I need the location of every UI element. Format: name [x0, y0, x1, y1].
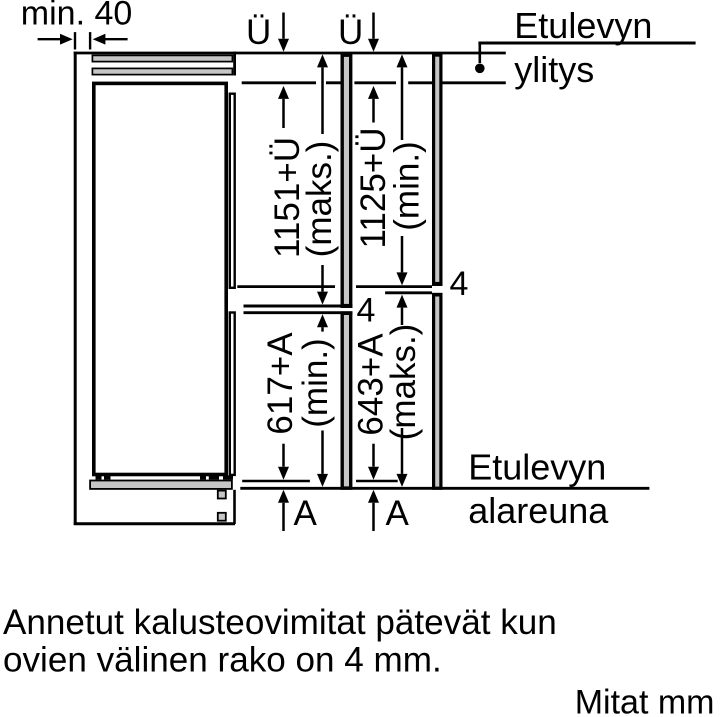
svg-text:Ü: Ü: [338, 13, 363, 52]
svg-text:4: 4: [357, 292, 376, 330]
svg-text:(maks.): (maks.): [300, 141, 339, 258]
svg-text:ylitys: ylitys: [514, 49, 594, 90]
svg-text:(min.): (min.): [296, 338, 335, 427]
svg-text:(min.): (min.): [388, 141, 427, 230]
svg-text:min. 40: min. 40: [21, 0, 133, 33]
svg-text:617+A: 617+A: [261, 332, 300, 435]
svg-text:A: A: [386, 494, 410, 533]
svg-text:Ü: Ü: [246, 13, 271, 52]
svg-text:Annetut kalusteovimitat pätevä: Annetut kalusteovimitat pätevät kun: [3, 603, 557, 642]
svg-text:Etulevyn: Etulevyn: [514, 5, 652, 46]
svg-text:Mitat mm: Mitat mm: [575, 684, 715, 717]
svg-text:(maks.): (maks.): [384, 324, 423, 441]
svg-text:alareuna: alareuna: [468, 490, 609, 531]
svg-text:A: A: [294, 494, 318, 533]
svg-text:ovien välinen rako on 4 mm.: ovien välinen rako on 4 mm.: [3, 641, 442, 680]
svg-text:4: 4: [450, 265, 469, 303]
svg-text:Etulevyn: Etulevyn: [468, 447, 606, 488]
